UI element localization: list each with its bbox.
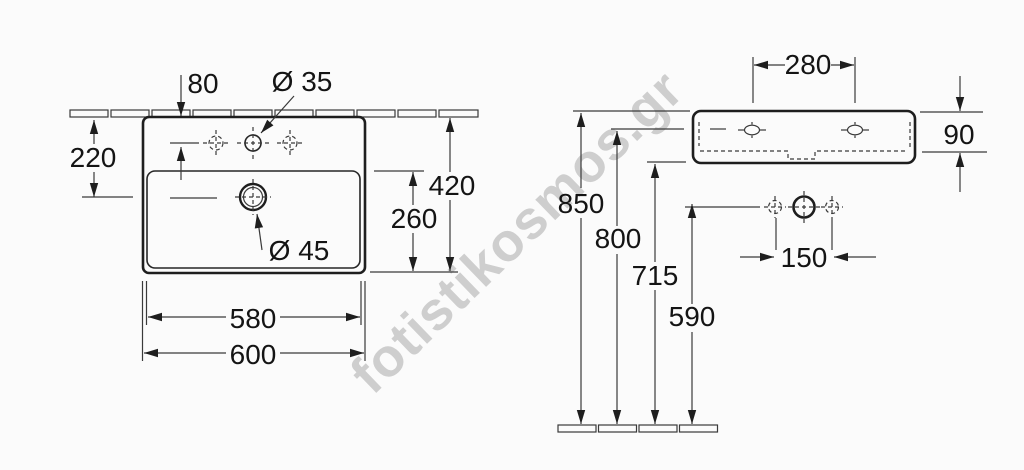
fixing-hole-right	[841, 122, 869, 138]
dim-label-220: 220	[70, 142, 117, 173]
dim-overall-depth: 420	[370, 118, 475, 272]
dim-bowl-width: 580	[148, 303, 360, 334]
dim-drain-offset: 220	[70, 120, 133, 197]
dim-label-d35: Ø 35	[272, 66, 333, 97]
dim-label-715: 715	[632, 260, 679, 291]
connection-hole-center	[788, 191, 820, 223]
basin-side-profile	[693, 111, 915, 163]
dim-label-280: 280	[785, 49, 832, 80]
tap-hole-optional-left	[203, 130, 229, 156]
dim-label-590: 590	[669, 301, 716, 332]
dim-label-850: 850	[558, 188, 605, 219]
dim-label-d45: Ø 45	[269, 235, 330, 266]
connection-hole-left	[764, 196, 786, 218]
dim-connection-spacing: 150	[740, 218, 876, 273]
dim-label-150: 150	[781, 242, 828, 273]
dim-overall-width: 600	[144, 339, 364, 370]
dim-drain-diameter: Ø 45	[257, 214, 329, 266]
dim-label-600: 600	[230, 339, 277, 370]
drain-hole	[235, 179, 271, 215]
dim-label-260: 260	[391, 203, 438, 234]
tap-hole-optional-right	[277, 130, 303, 156]
dim-label-80: 80	[187, 68, 218, 99]
dim-connection-height: 590	[669, 204, 716, 424]
connection-hole-right	[821, 196, 843, 218]
fixing-hole-left	[738, 122, 766, 138]
side-view: 280 90	[558, 49, 987, 432]
basin-outline	[143, 117, 365, 273]
dim-label-420: 420	[429, 170, 476, 201]
dim-underside-height: 715	[632, 164, 679, 424]
dim-label-800: 800	[595, 223, 642, 254]
dim-label-90: 90	[943, 119, 974, 150]
technical-drawing-page: fotistikosmos.gr	[0, 0, 1024, 470]
dim-tap-offset: 80	[181, 68, 219, 180]
dim-fixing-spacing: 280	[753, 49, 855, 103]
floor-line	[558, 425, 718, 432]
dim-rim-height: 850	[558, 113, 605, 424]
dimension-drawing: 80 Ø 35 220 420	[0, 0, 1024, 470]
front-view: 80 Ø 35 220 420	[70, 66, 478, 370]
dim-tap-diameter: Ø 35	[261, 66, 332, 133]
bowl-hidden-contour	[699, 122, 910, 159]
dim-basin-height: 90	[920, 76, 987, 192]
tap-hole-center	[237, 127, 269, 159]
dim-label-580: 580	[230, 303, 277, 334]
